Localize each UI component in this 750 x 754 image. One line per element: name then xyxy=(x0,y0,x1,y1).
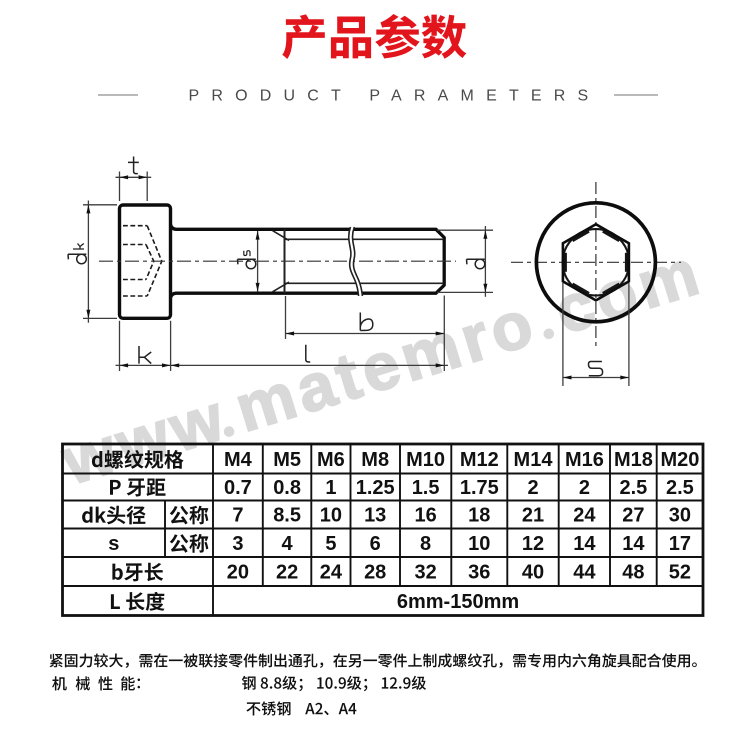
svg-text:40: 40 xyxy=(522,562,544,584)
svg-text:M12: M12 xyxy=(460,449,499,471)
svg-text:0.7: 0.7 xyxy=(224,477,252,499)
svg-text:36: 36 xyxy=(468,562,490,584)
svg-text:10: 10 xyxy=(320,505,342,527)
svg-text:44: 44 xyxy=(573,562,596,584)
svg-text:1.75: 1.75 xyxy=(460,477,499,499)
svg-text:4: 4 xyxy=(282,533,294,555)
svg-text:10: 10 xyxy=(468,533,490,555)
svg-text:M5: M5 xyxy=(273,449,301,471)
svg-text:12: 12 xyxy=(522,533,544,555)
svg-text:M4: M4 xyxy=(224,449,253,471)
svg-text:13: 13 xyxy=(364,505,386,527)
svg-text:48: 48 xyxy=(622,562,644,584)
svg-text:27: 27 xyxy=(622,505,644,527)
svg-text:M16: M16 xyxy=(565,449,604,471)
svg-text:7: 7 xyxy=(232,505,243,527)
svg-text:2: 2 xyxy=(527,477,538,499)
svg-text:8: 8 xyxy=(420,533,431,555)
svg-text:24: 24 xyxy=(573,505,596,527)
svg-text:M14: M14 xyxy=(514,449,554,471)
svg-text:16: 16 xyxy=(414,505,436,527)
svg-text:6mm-150mm: 6mm-150mm xyxy=(397,591,519,613)
svg-text:M6: M6 xyxy=(317,449,345,471)
svg-text:32: 32 xyxy=(414,562,436,584)
svg-text:5: 5 xyxy=(325,533,336,555)
svg-text:M20: M20 xyxy=(660,449,699,471)
svg-text:6: 6 xyxy=(370,533,381,555)
svg-text:3: 3 xyxy=(232,533,243,555)
svg-text:s: s xyxy=(108,533,119,555)
svg-text:18: 18 xyxy=(468,505,490,527)
svg-text:14: 14 xyxy=(622,533,645,555)
svg-text:17: 17 xyxy=(669,533,691,555)
svg-text:2: 2 xyxy=(579,477,590,499)
svg-text:24: 24 xyxy=(320,562,343,584)
svg-text:M18: M18 xyxy=(614,449,653,471)
svg-text:M10: M10 xyxy=(406,449,445,471)
svg-text:20: 20 xyxy=(227,562,249,584)
svg-text:52: 52 xyxy=(669,562,691,584)
svg-text:28: 28 xyxy=(364,562,386,584)
svg-text:2.5: 2.5 xyxy=(619,477,647,499)
svg-text:1: 1 xyxy=(325,477,336,499)
svg-text:M8: M8 xyxy=(361,449,389,471)
svg-text:21: 21 xyxy=(522,505,544,527)
svg-text:14: 14 xyxy=(573,533,596,555)
svg-text:PRODUCT PARAMETERS: PRODUCT PARAMETERS xyxy=(189,87,601,104)
svg-text:www: www xyxy=(53,379,236,499)
svg-text:1.5: 1.5 xyxy=(412,477,440,499)
svg-text:2.5: 2.5 xyxy=(666,477,694,499)
svg-text:30: 30 xyxy=(669,505,691,527)
svg-text:1.25: 1.25 xyxy=(356,477,395,499)
svg-text:0.8: 0.8 xyxy=(273,477,301,499)
svg-text:8.5: 8.5 xyxy=(273,505,301,527)
svg-text:22: 22 xyxy=(276,562,298,584)
